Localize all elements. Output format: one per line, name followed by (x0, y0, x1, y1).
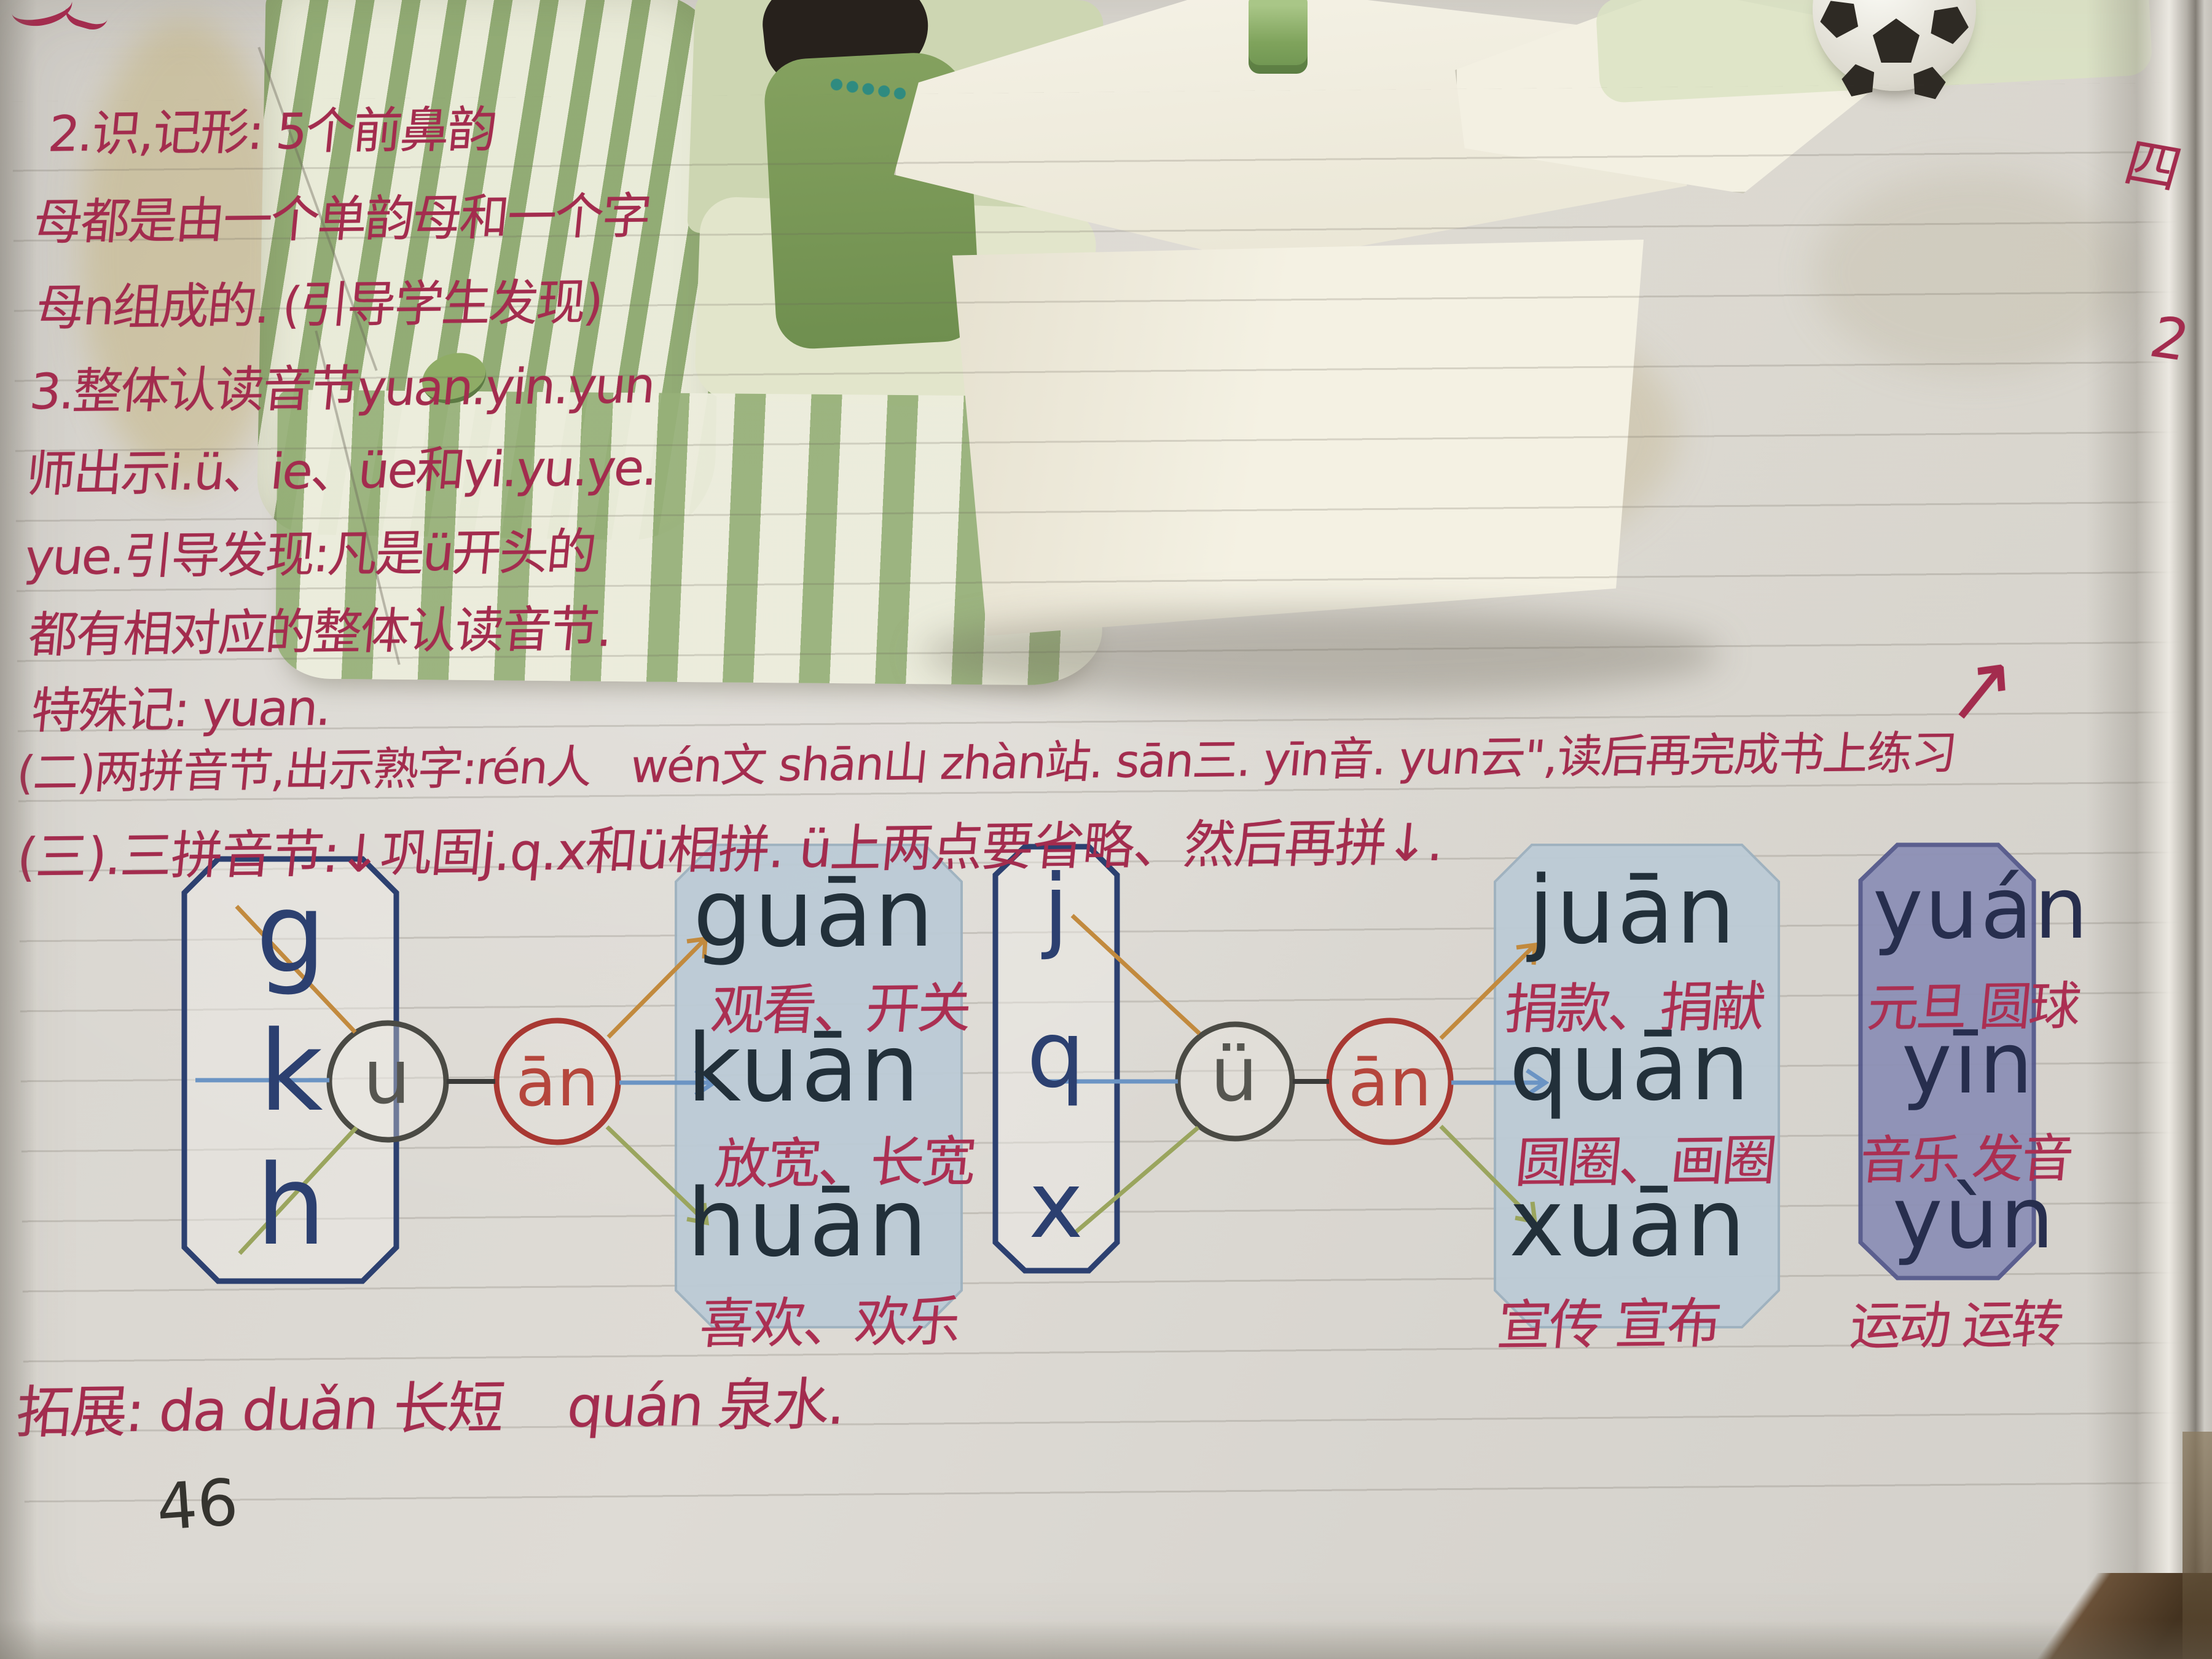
medial-u: u (343, 1033, 433, 1121)
note-line-4: 3.整体认读音节yuan.yin.yun (27, 346, 657, 424)
note-line-2: 母都是由一个单韵母和一个字 (31, 176, 653, 254)
syllable-kuan: kuān (687, 1014, 921, 1123)
initial-h: h (233, 1142, 350, 1270)
note-line-1: 2.识,记形: 5个前鼻韵 (45, 90, 499, 166)
textbook-page-photo: g k h u ān j q x ü ān guān 观看、开关 kuān 放宽… (0, 0, 2212, 1659)
syllable-juan: juān (1528, 856, 1737, 965)
words-huan: 喜欢、欢乐 (697, 1278, 962, 1359)
page-number: 46 (154, 1465, 241, 1545)
words-yun: 运动 运转 (1847, 1283, 2065, 1360)
page-edge-curl (2086, 0, 2212, 1659)
words-xuan: 宣传 宣布 (1494, 1280, 1723, 1360)
left-shade (0, 0, 37, 1659)
final-an: ān (501, 1045, 614, 1121)
arrow-up-right: ↗ (1942, 634, 2018, 744)
syllable-yun: yùn (1892, 1169, 2056, 1268)
syllable-yin: yīn (1902, 1014, 2034, 1113)
initial-q: q (1008, 1002, 1106, 1108)
note-three-pin: (三).三拼音节:↓巩固j.q.x和ü相拼. ü上两点要省略、然后再拼↓. (14, 801, 1447, 890)
initial-x: x (1008, 1152, 1106, 1259)
note-line-5: 师出示i.ü、ie、üe和yi.yu.ye. (23, 428, 660, 506)
extension-note: 拓展: da duǎn 长短 quán 泉水. (13, 1359, 849, 1449)
initial-k: k (233, 1008, 350, 1136)
bottom-shadow (0, 1620, 2212, 1659)
syllable-huan: huān (687, 1169, 929, 1277)
syllable-quan: quān (1509, 1013, 1751, 1121)
medial-u-umlaut: ü (1190, 1031, 1281, 1118)
note-line-7: 都有相对应的整体认读音节. (26, 589, 614, 667)
note-line-8: 特殊记: yuan. (28, 668, 334, 742)
syllable-yuan: yuán (1873, 859, 2090, 958)
syllable-xuan: xuān (1509, 1169, 1747, 1277)
final-an-2: ān (1333, 1045, 1447, 1121)
initial-g: g (233, 869, 350, 998)
note-line-6: yue.引导发现:凡是ü开头的 (22, 512, 598, 589)
note-line-3: 母n组成的. (引导学生发现) (33, 262, 605, 340)
